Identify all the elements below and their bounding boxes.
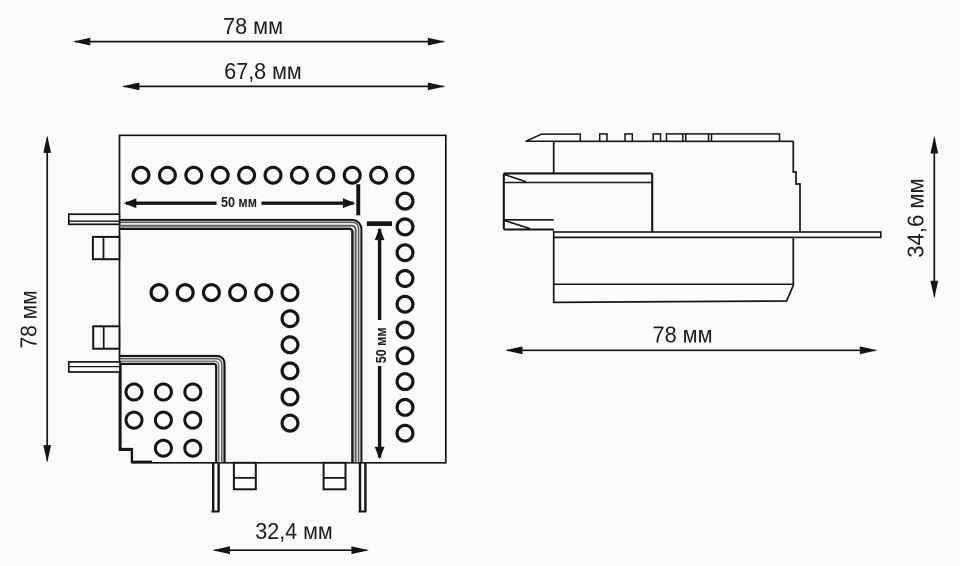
svg-text:78 мм: 78 мм bbox=[223, 13, 283, 39]
svg-text:32,4 мм: 32,4 мм bbox=[255, 518, 333, 544]
svg-text:50 мм: 50 мм bbox=[374, 327, 390, 363]
svg-text:34,6 мм: 34,6 мм bbox=[903, 178, 929, 258]
svg-text:50 мм: 50 мм bbox=[221, 195, 257, 211]
svg-text:78 мм: 78 мм bbox=[653, 322, 713, 348]
svg-text:67,8 мм: 67,8 мм bbox=[224, 58, 302, 84]
svg-text:78 мм: 78 мм bbox=[16, 291, 42, 349]
